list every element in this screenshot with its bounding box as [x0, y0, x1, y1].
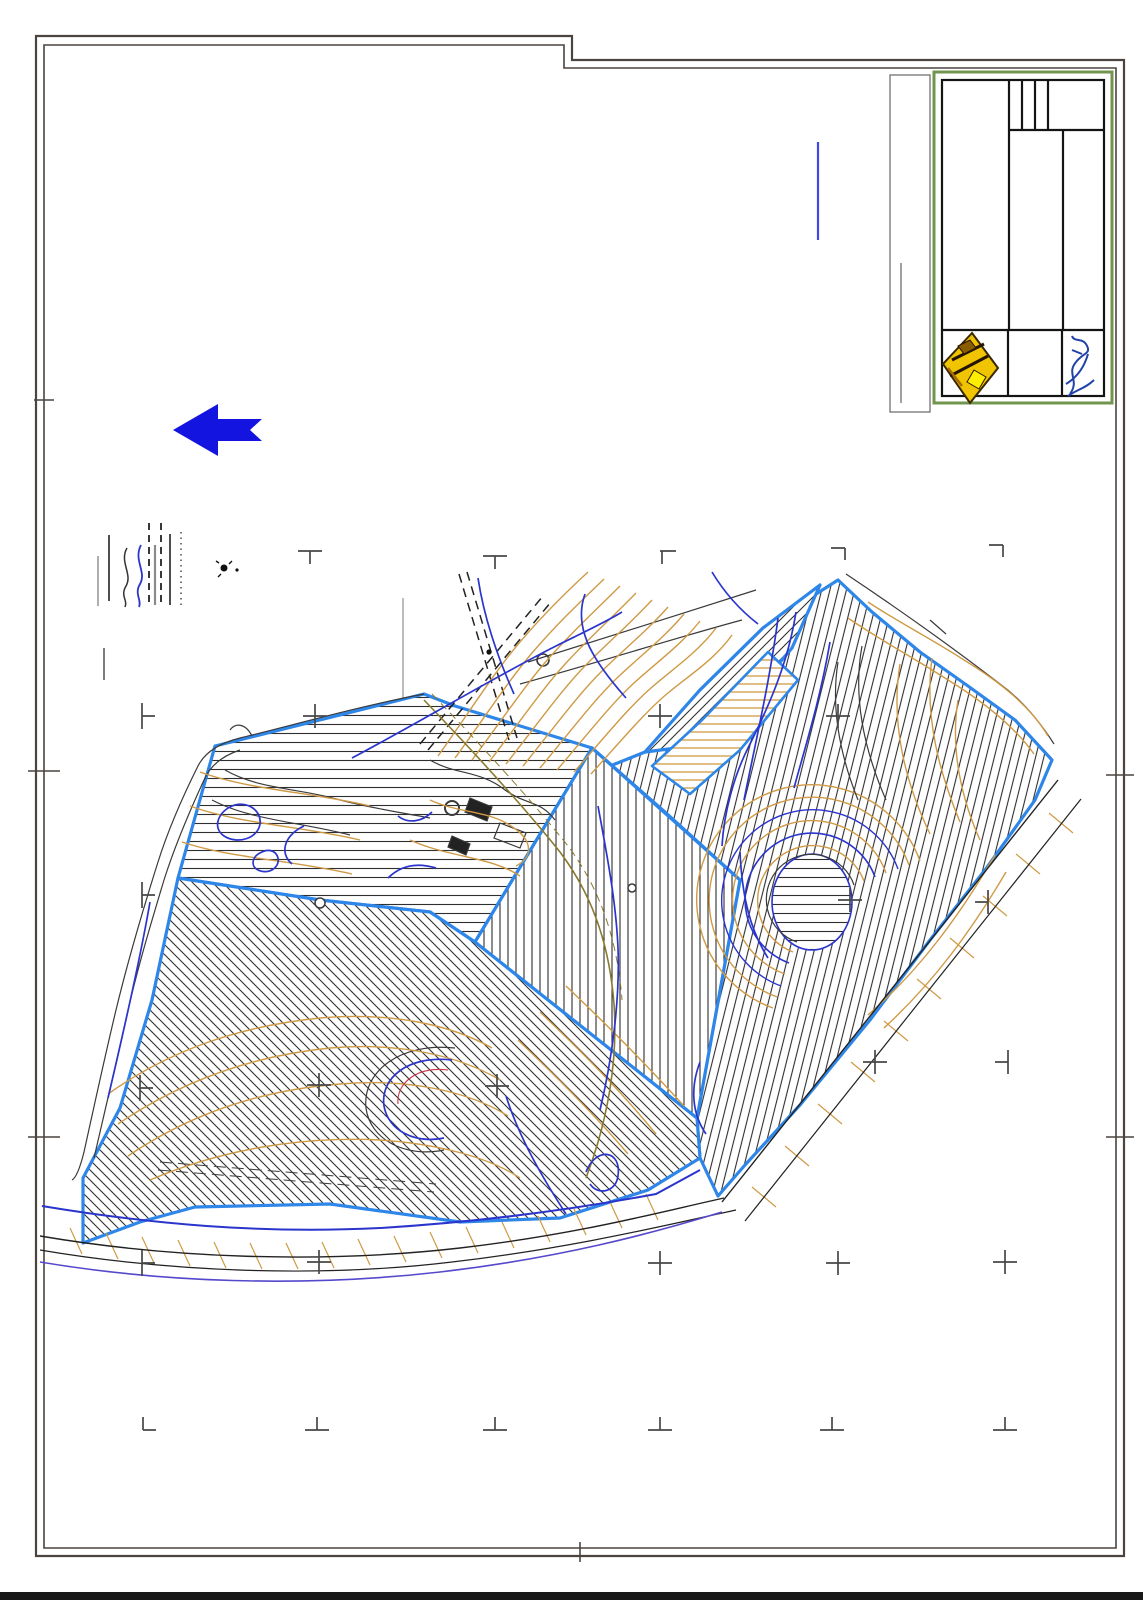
drawing-sheet: [0, 0, 1143, 1600]
parcel-boundaries: [83, 580, 1052, 1243]
legend: [98, 523, 403, 700]
title-block-side-panel: [890, 75, 930, 412]
site-map: [40, 545, 1081, 1430]
bottom-scan-bar: [0, 1592, 1143, 1600]
track-node: [486, 649, 491, 654]
legend-point-marker: [216, 561, 239, 577]
north-arrow-icon: [173, 404, 262, 456]
title-block: [890, 72, 1112, 412]
legend-terrain-wavy-line: [124, 548, 128, 607]
legend-stream-wavy-line: [138, 545, 142, 607]
